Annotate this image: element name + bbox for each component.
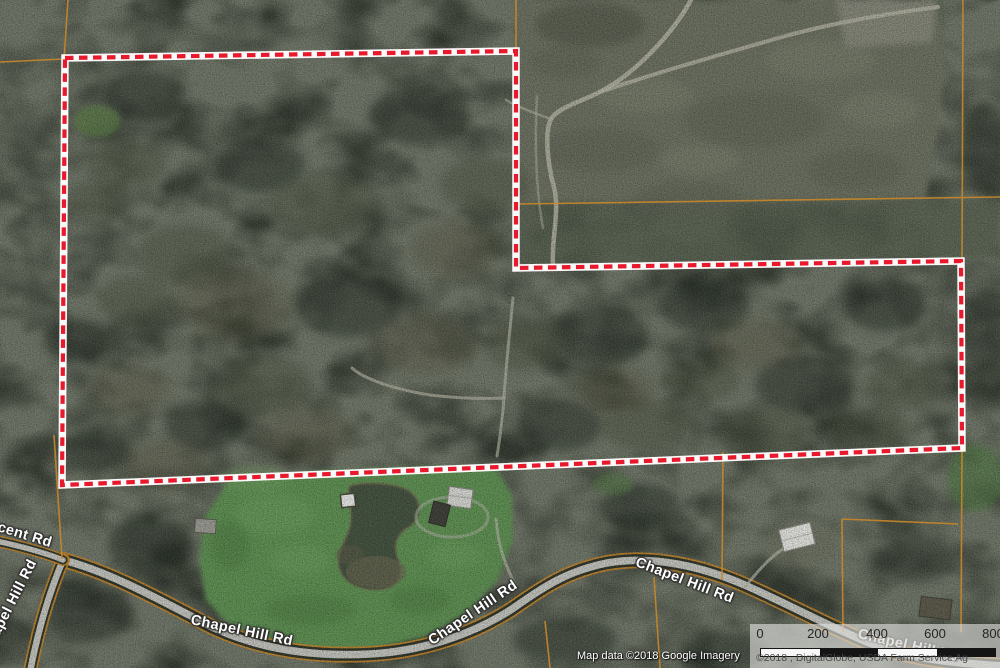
satellite-imagery xyxy=(0,0,1000,668)
map-attribution: Map data ©2018 Google Imagery xyxy=(577,650,740,662)
imagery-grain-light xyxy=(0,0,1000,668)
scale-tick-400: 400 xyxy=(866,626,888,641)
satellite-map-viewport[interactable]: Chapel Hill Rd Chapel Hill Rd Chapel Hil… xyxy=(0,0,1000,668)
scale-tick-0: 0 xyxy=(756,626,763,641)
scale-tick-200: 200 xyxy=(807,626,829,641)
scale-tick-800: 800 xyxy=(982,626,1000,641)
imagery-credits: ©2018 , DigitalGlobe, USDA Farm Service … xyxy=(756,652,998,664)
scale-bar-panel: 0 200 400 600 800 ©2018 , DigitalGlobe, … xyxy=(750,624,1000,668)
scale-tick-600: 600 xyxy=(924,626,946,641)
